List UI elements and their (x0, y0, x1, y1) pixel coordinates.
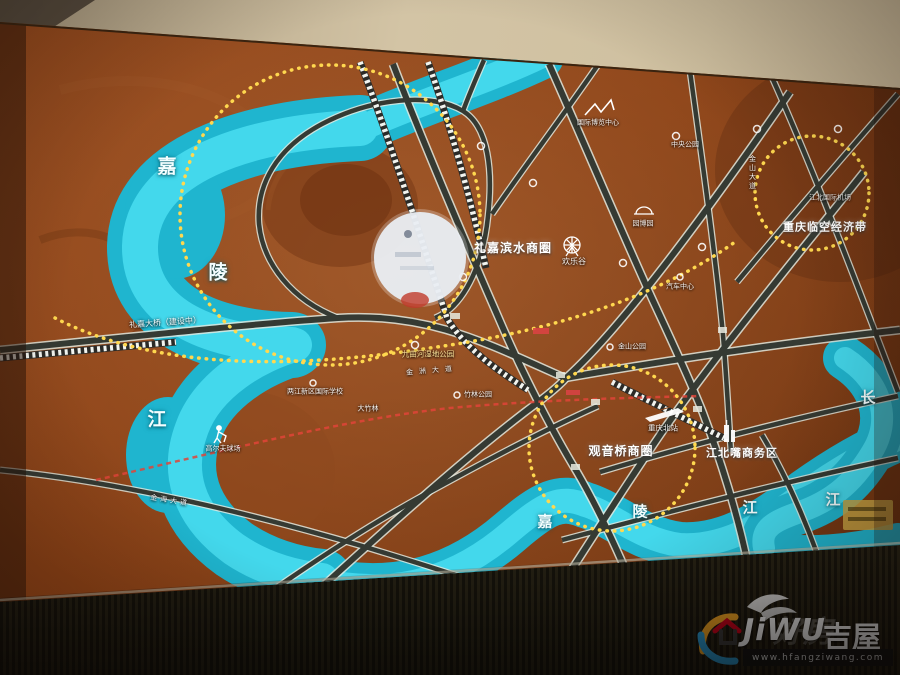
watermark-brand-latin: JiWU (743, 613, 826, 648)
board-left-shadow (0, 22, 26, 602)
board-right-shadow (874, 86, 900, 547)
photo-of-map-board: 嘉 陵 江 嘉 陵 江 长 江 礼嘉大桥（建设中） 礼嘉滨水商圈 观音桥商圈 江… (0, 0, 900, 675)
jiwu-logo-swirl (701, 617, 739, 661)
watermark-cluster: 好房 JiWU 吉屋 www.hfangziwang.com (685, 587, 900, 675)
watermark-url: www.hfangziwang.com (743, 649, 893, 666)
map-board (0, 0, 900, 675)
